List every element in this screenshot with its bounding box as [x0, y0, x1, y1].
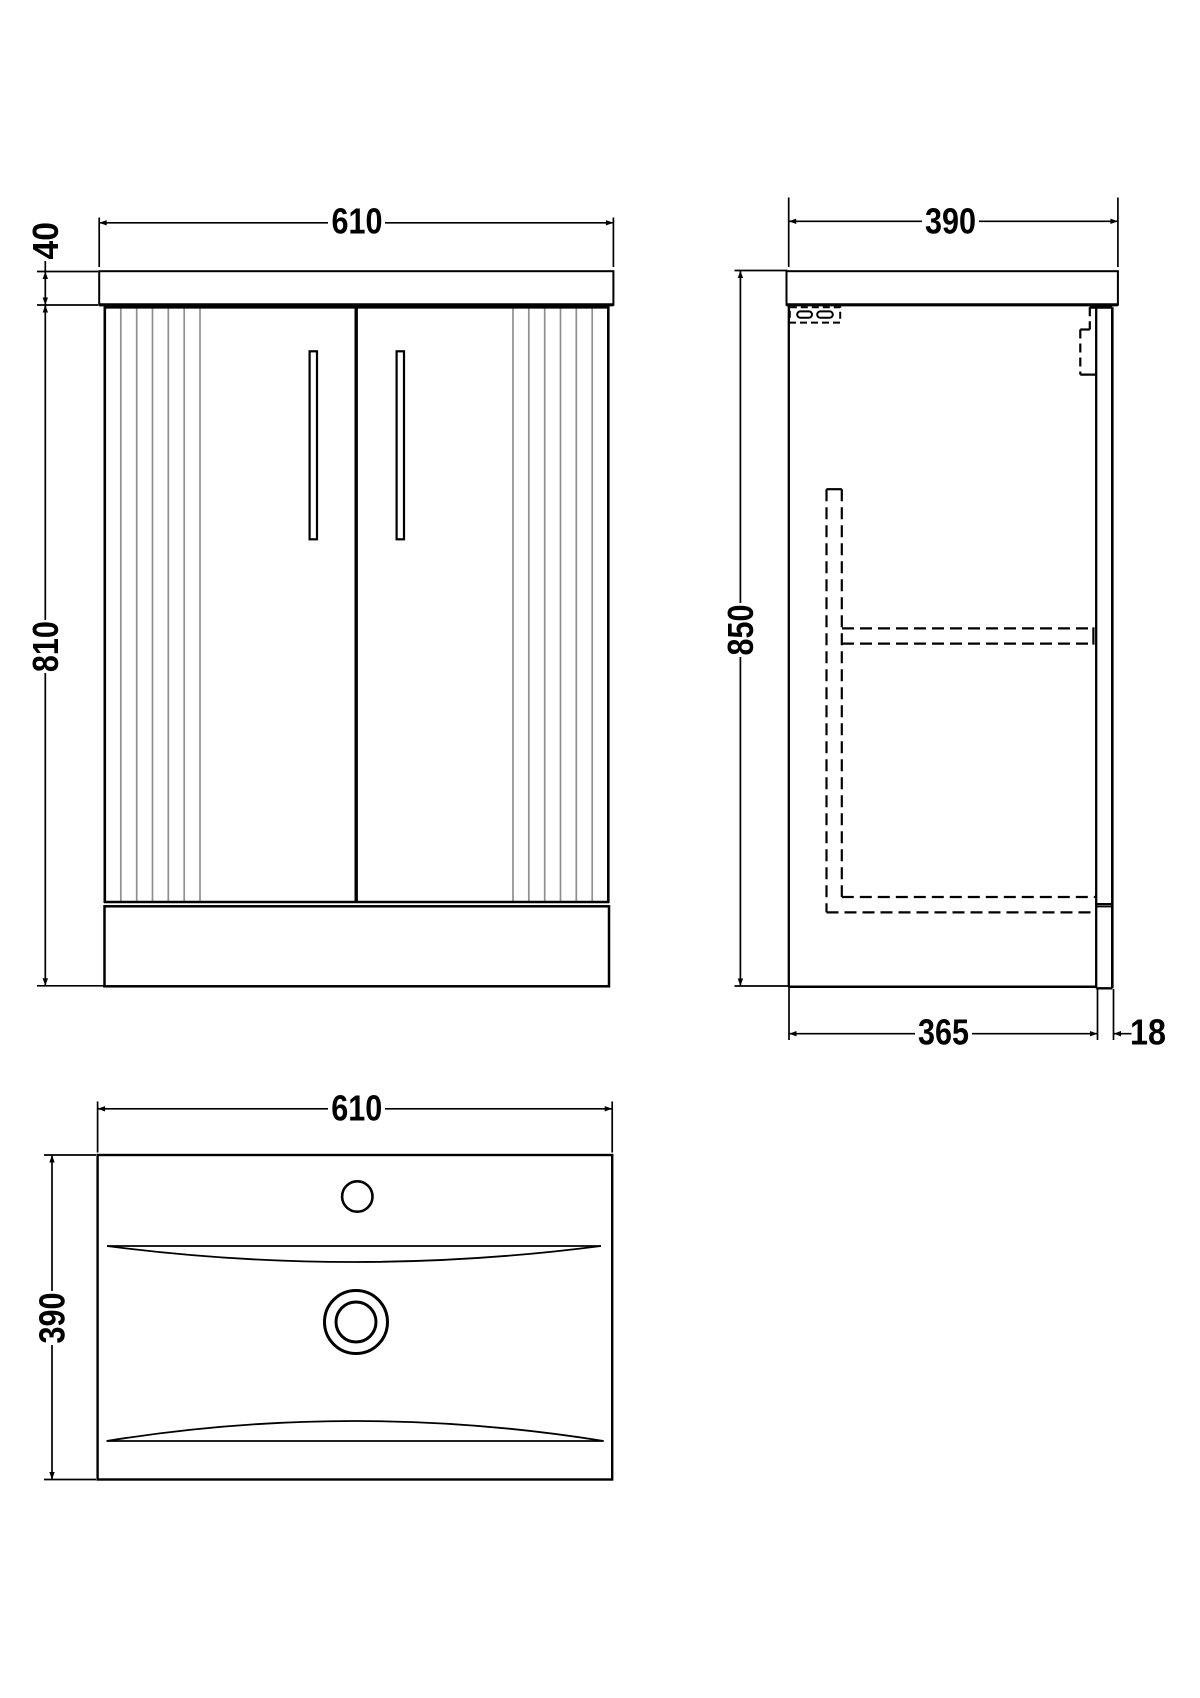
svg-text:850: 850 — [720, 605, 761, 656]
svg-text:390: 390 — [31, 1293, 72, 1344]
svg-text:40: 40 — [25, 222, 66, 260]
svg-text:810: 810 — [25, 621, 66, 672]
svg-text:18: 18 — [1130, 1012, 1166, 1053]
svg-text:610: 610 — [332, 201, 383, 242]
svg-text:390: 390 — [925, 201, 976, 242]
svg-text:365: 365 — [918, 1012, 969, 1053]
svg-text:610: 610 — [331, 1088, 382, 1129]
